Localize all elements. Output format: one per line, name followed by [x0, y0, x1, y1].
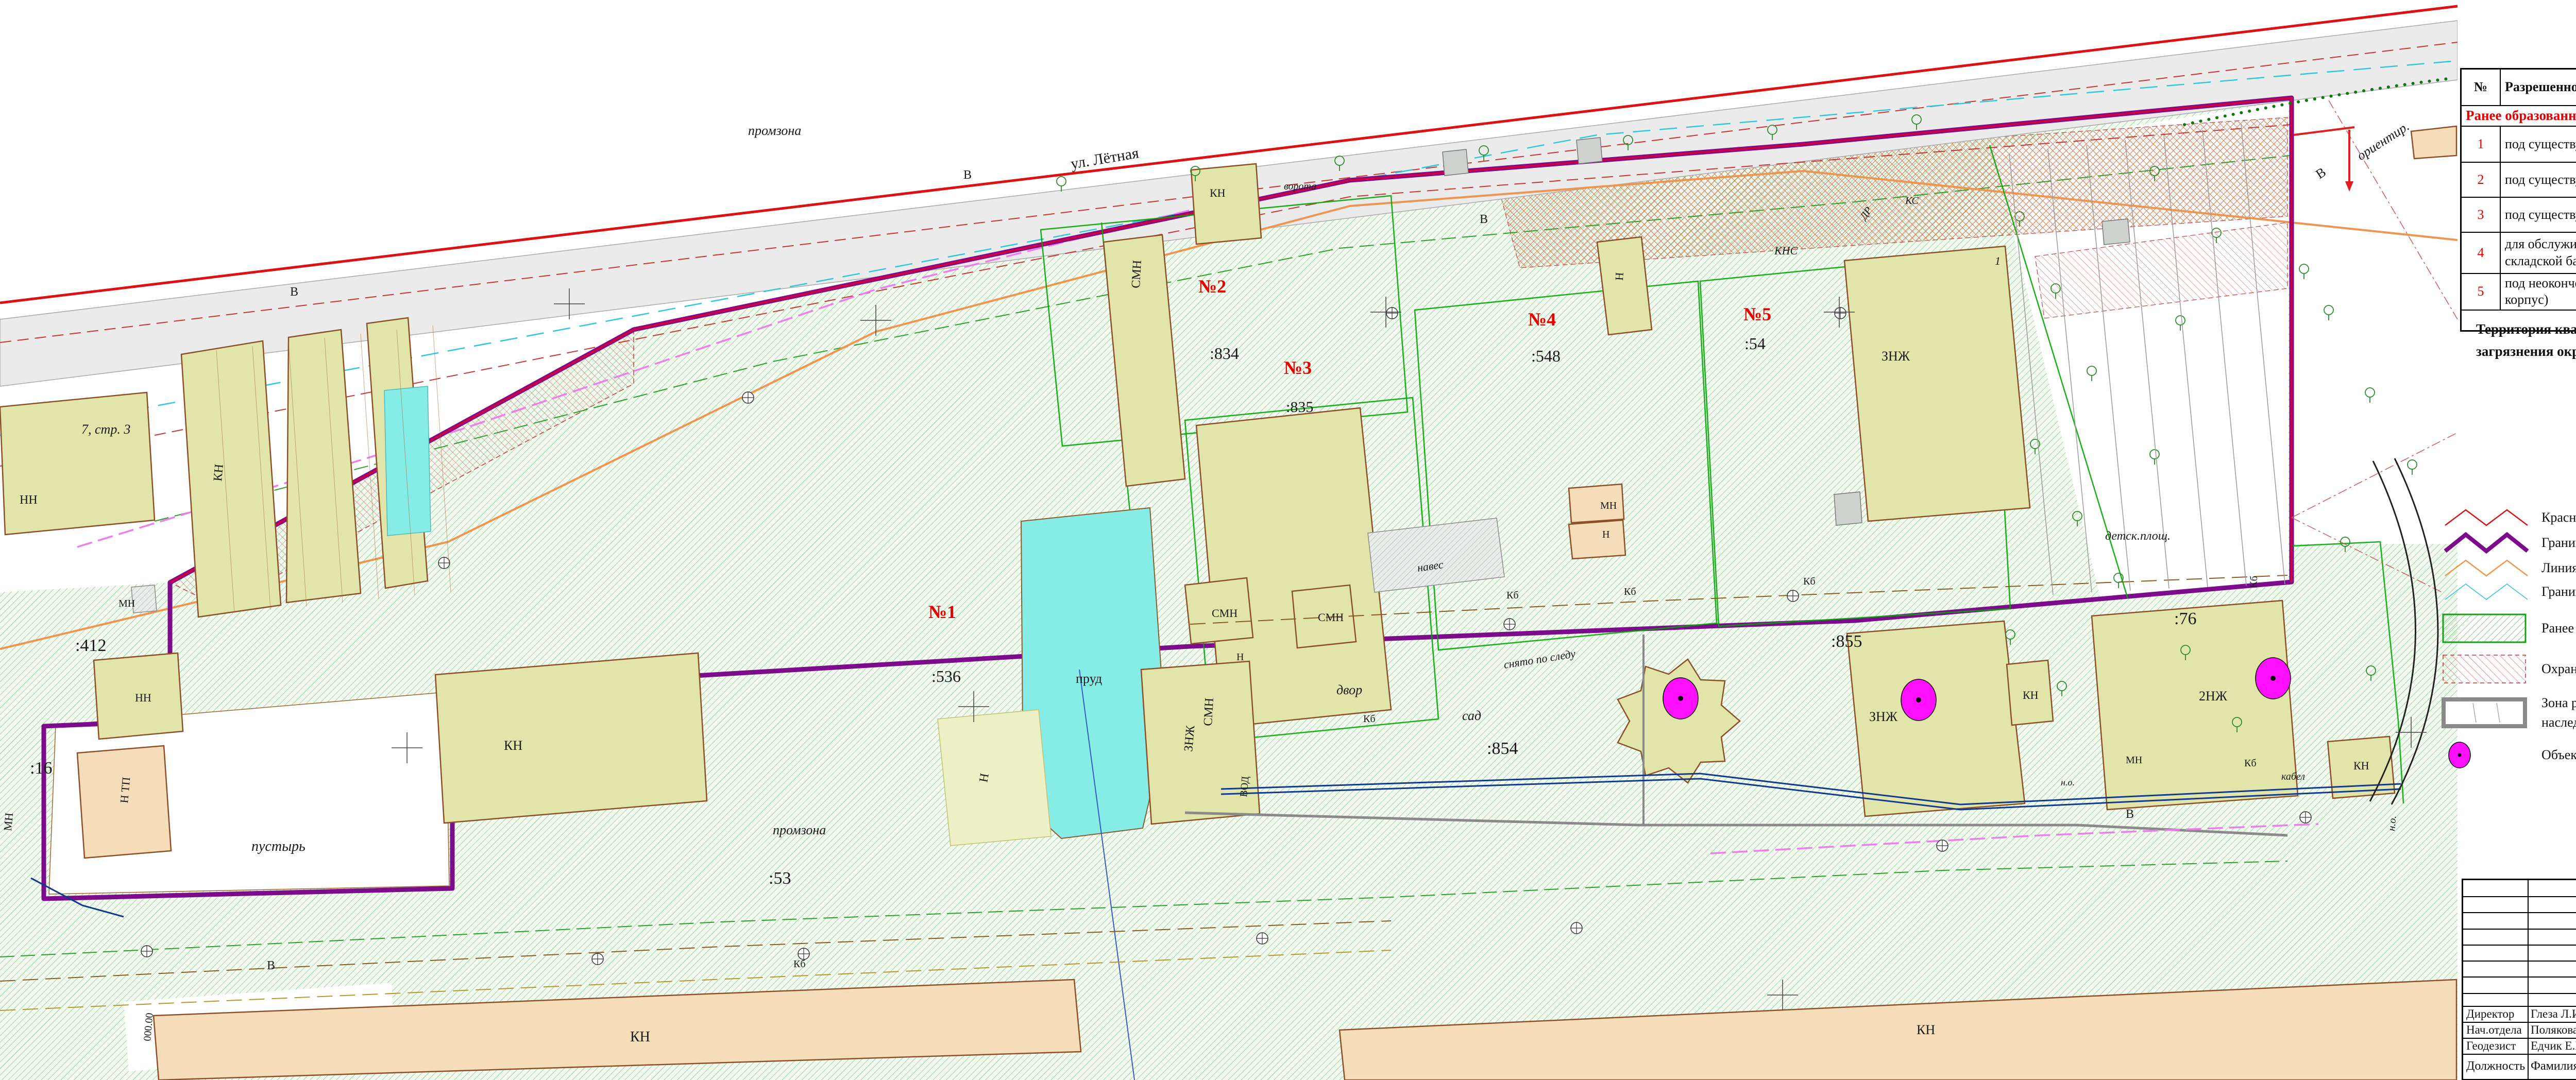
table-row: 5под неоконченное строительством нежилое… [2461, 273, 2576, 310]
manhole-icon [592, 953, 603, 965]
manhole-icon [141, 946, 152, 957]
legend-label: Зона регулирования застройки и хозяйстве… [2541, 693, 2576, 732]
base-map: ул. Лётнаяпромзонапромзона:53пустырь:412… [0, 0, 2458, 1080]
manhole-icon [1257, 933, 1268, 944]
legend-items: Красные линииГраницы квартала межеванияЛ… [2441, 506, 2576, 769]
map-label: №1 [928, 602, 956, 622]
manhole-icon [1386, 307, 1398, 319]
building [435, 653, 707, 823]
map-label: :854 [1487, 739, 1518, 758]
building [384, 386, 431, 536]
map-label: Кб [1624, 586, 1636, 597]
sig-name: Едчик Е.В. [2528, 1038, 2576, 1054]
map-label: №2 [1198, 276, 1226, 297]
heritage-object-marker [1901, 679, 1936, 721]
building [1191, 164, 1261, 244]
map-label: ВОД [1238, 776, 1251, 798]
sig-role: Геодезист [2463, 1038, 2531, 1054]
map-label: КН [1210, 186, 1226, 199]
map-label: НН [20, 493, 38, 507]
map-label: СМН [1129, 260, 1144, 288]
section-row: Ранее образованные земельные участки: [2461, 106, 2576, 126]
map-label: ЗНЖ [1882, 349, 1910, 364]
col-num: № [2461, 69, 2501, 106]
legend-label: Границы кадастрового квартала [2541, 582, 2576, 602]
map-label: Н [1236, 652, 1244, 663]
legend-label: Объект культурного наследия региональног… [2541, 745, 2576, 765]
map-label: СМН [1212, 607, 1238, 620]
manhole-icon [1571, 922, 1582, 934]
building [181, 341, 281, 617]
legend-item: Линия отступа от красных линий [2441, 556, 2576, 580]
building [1443, 149, 1468, 176]
map-label: 1 [1995, 254, 2001, 267]
map-label: Н ТП [117, 777, 132, 804]
map-label: двор [1336, 682, 1362, 697]
legend-item: Границы квартала межевания [2441, 529, 2576, 556]
explication-table-body: 1под существующие здания и сооружения ад… [2461, 126, 2576, 310]
building [2411, 126, 2456, 159]
map-label: В [963, 168, 972, 182]
map-label: №4 [1528, 309, 1556, 330]
table-row: 3под существующие здания и сооружения ад… [2461, 197, 2576, 232]
map-label: Кб [793, 958, 806, 970]
survey-plan-page: ул. Лётнаяпромзонапромзона:53пустырь:412… [0, 0, 2576, 1080]
map-label: детск.площ. [2105, 529, 2171, 543]
zone-gray-swatch [2441, 697, 2541, 729]
map-label: Кб [2244, 758, 2257, 769]
legend-item: Границы кадастрового квартала [2441, 580, 2576, 604]
map-label: Кб [2248, 576, 2260, 589]
map-label: ворота [1284, 181, 1316, 192]
map-label: :412 [75, 636, 106, 655]
table-row: 4для обслуживания существующих зданий и … [2461, 232, 2576, 273]
sig-header-name: Фамилия [2528, 1054, 2576, 1079]
building [0, 392, 155, 535]
map-label: КН [1917, 1022, 1935, 1037]
explication-table: № Разрешенное использование Площадь,кв.м… [2460, 68, 2576, 332]
map-label: НН [135, 691, 151, 704]
map-label: КН [504, 738, 522, 753]
map-label: МН [2126, 755, 2142, 766]
map-label: КН [2353, 759, 2369, 772]
sanitary-zone-note: Территория квартала полностью расположен… [2476, 318, 2576, 363]
legend-item: Объект культурного наследия региональног… [2441, 741, 2576, 769]
map-label: промзона [773, 822, 826, 837]
sig-header-role: Должность [2463, 1054, 2531, 1079]
col-use: Разрешенное использование [2500, 69, 2576, 106]
table-row: 1под существующие здания и сооружения ад… [2461, 126, 2576, 162]
map-label: н.о. [2386, 815, 2399, 832]
map-label: :16 [30, 759, 52, 778]
sig-role: Директор [2463, 1006, 2531, 1022]
map-label: :76 [2174, 609, 2196, 628]
manhole-icon [798, 948, 809, 959]
map-label: МН [1600, 500, 1617, 511]
map-label: пустырь [251, 838, 306, 854]
map-label: КН [630, 1029, 650, 1045]
map-label: :54 [1744, 334, 1766, 353]
zigzag-red-swatch [2441, 506, 2541, 529]
map-label: СМН [1318, 611, 1344, 624]
hatch-green-swatch [2441, 612, 2541, 644]
legend-label: Охранная зона инженерных коммуникаций [2541, 659, 2576, 679]
map-label: :536 [931, 667, 961, 685]
manhole-icon [2300, 812, 2311, 823]
building [1569, 520, 1625, 559]
sig-role: Нач.отдела [2463, 1022, 2531, 1038]
map-area: ул. Лётнаяпромзонапромзона:53пустырь:412… [0, 0, 2458, 1080]
sig-name: Глеза Л.И. [2528, 1006, 2576, 1022]
map-label: Н [1613, 272, 1626, 281]
map-label: В [290, 285, 298, 299]
manhole-icon [438, 557, 450, 569]
heritage-object-marker [1663, 678, 1698, 719]
legend-item: Красные линии [2441, 506, 2576, 529]
map-label: :53 [769, 869, 791, 888]
map-label: СМН [1201, 697, 1216, 726]
zigzag-cyan-swatch [2441, 580, 2541, 604]
map-label: :835 [1286, 399, 1313, 416]
map-label: Кб [1803, 576, 1816, 587]
map-label: №5 [1743, 304, 1771, 324]
building [1834, 492, 1862, 525]
legend-label: Красные линии [2541, 508, 2576, 527]
legend-label: Границы квартала межевания [2541, 533, 2576, 553]
map-label: КН [211, 464, 226, 482]
map-label: :548 [1531, 347, 1561, 365]
building [2102, 219, 2130, 245]
map-label: ЗНЖ [1869, 709, 1898, 724]
manhole-icon [1937, 840, 1948, 851]
legend: УСЛОВНЫЕ ОБОЗНАЧЕНИЯ Красные линииГраниц… [2441, 482, 2576, 769]
legend-item: Ранее образованные, сохраняемые земельны… [2441, 604, 2576, 653]
map-label: 7, стр. 3 [81, 422, 130, 437]
map-label: :834 [1210, 344, 1239, 363]
hatch-red-swatch [2441, 653, 2541, 685]
building [2092, 601, 2298, 810]
map-label: №3 [1284, 357, 1312, 378]
map-label: Кб [1506, 590, 1519, 601]
zigzag-orange-swatch [2441, 556, 2541, 580]
zigzag-purple-swatch [2441, 529, 2541, 556]
map-label: кабел [2281, 771, 2305, 782]
table-row: 2под существующие здания и сооружения ад… [2461, 162, 2576, 197]
building [1844, 246, 2030, 521]
heritage-object-marker [2256, 658, 2291, 699]
map-label: н.о. [2061, 777, 2075, 787]
dot-magenta-swatch [2441, 741, 2541, 769]
manhole-icon [742, 392, 754, 403]
manhole-icon [1504, 619, 1515, 630]
map-label: КС [1905, 195, 1919, 207]
legend-label: Ранее образованные, сохраняемые земельны… [2541, 619, 2576, 638]
legend-item: Зона регулирования застройки и хозяйстве… [2441, 685, 2576, 741]
manhole-icon [1835, 307, 1846, 319]
map-label: Н [1602, 529, 1609, 540]
map-label: КНС [1774, 244, 1798, 257]
map-label: МН [1, 812, 15, 832]
sig-name: Полякова Л.П. [2528, 1022, 2576, 1038]
legend-item: Охранная зона инженерных коммуникаций [2441, 653, 2576, 685]
map-label: 2НЖ [2199, 689, 2228, 704]
map-label: МН [118, 598, 135, 609]
map-label: КН [2023, 689, 2039, 701]
map-label: сад [1462, 708, 1481, 723]
map-label: промзона [748, 123, 801, 138]
manhole-icon [1787, 590, 1799, 602]
map-label: ЗНЖ [1182, 725, 1197, 752]
map-label: В [2126, 808, 2134, 821]
map-label: В [267, 959, 275, 972]
map-label: пруд [1076, 671, 1102, 686]
map-label: Кб [1363, 713, 1376, 725]
building [131, 585, 157, 613]
map-label: В [1480, 213, 1488, 226]
building [1141, 661, 1260, 824]
map-label: :855 [1831, 632, 1862, 651]
explication-subtitle: Экспликация земельных участков [2458, 45, 2576, 62]
legend-label: Линия отступа от красных линий [2541, 558, 2576, 578]
building [938, 710, 1051, 846]
building [1577, 138, 1602, 164]
title-block: 2016 46-Г-14,15,16; 56-Б-2,3,4,6,7,8 Зая… [2462, 879, 2576, 1080]
territory-area-title: Площадь территории межевания - 13874.00 … [2458, 13, 2576, 32]
